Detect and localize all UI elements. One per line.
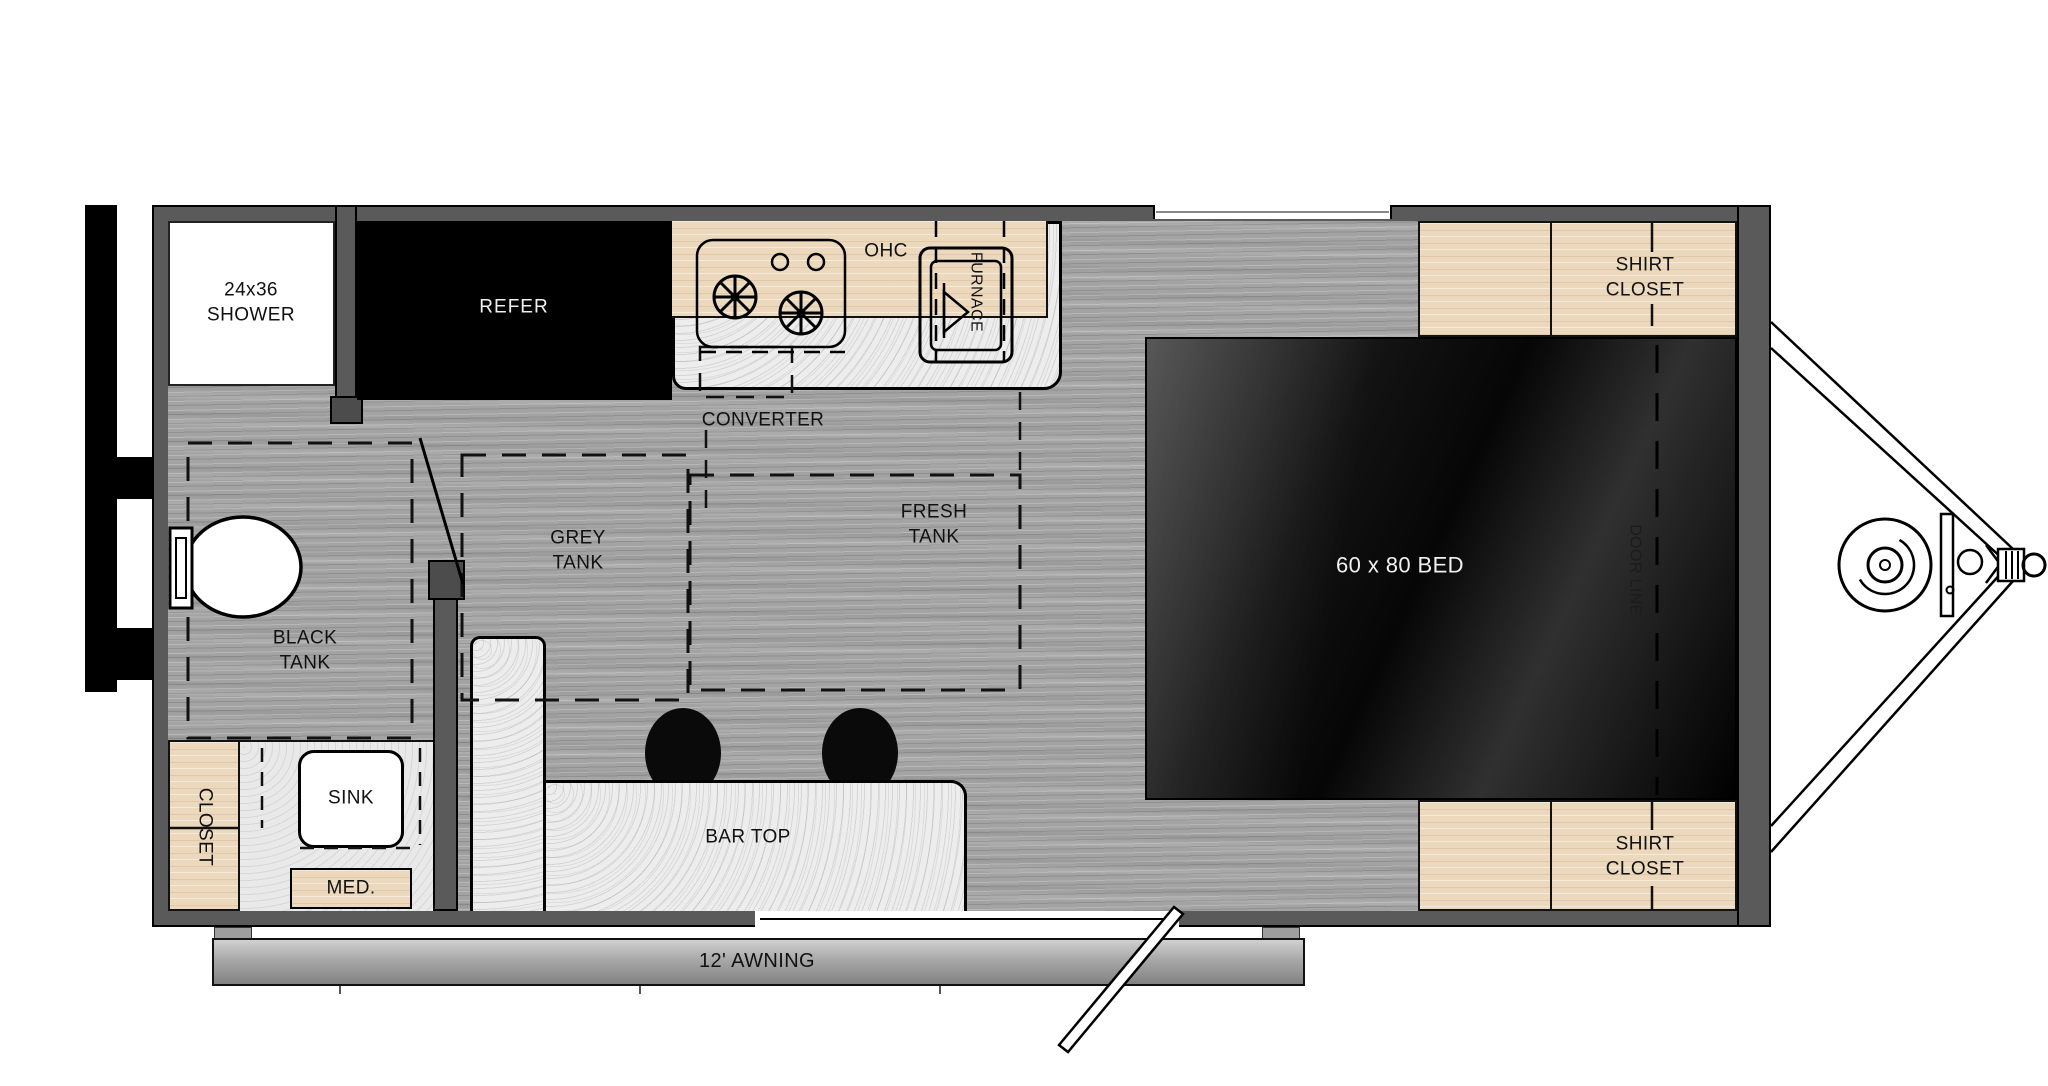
black-tank-label: BLACK TANK xyxy=(273,626,337,675)
refrigerator-label: REFER xyxy=(479,296,548,321)
medicine-cabinet-label: MED. xyxy=(326,877,375,902)
hitch-coupler-icon xyxy=(1947,549,2046,594)
rear-bumper-stub-upper xyxy=(85,457,155,499)
front-wall xyxy=(1737,205,1771,927)
bar-top-label: BAR TOP xyxy=(705,826,791,851)
door-line-label: DOOR LINE xyxy=(1624,524,1645,616)
rear-bumper-bar xyxy=(85,205,117,692)
bar-counter-leg xyxy=(470,636,546,911)
bathroom-partition-lower xyxy=(433,560,458,911)
converter-label: CONVERTER xyxy=(702,409,825,434)
entry-door-opening xyxy=(755,911,1179,927)
rear-bumper-stub-lower xyxy=(85,628,155,680)
overhead-cabinet xyxy=(672,221,1048,318)
overhead-cabinet-label: OHC xyxy=(864,240,907,265)
shirt-closet-bottom xyxy=(1418,800,1737,911)
shirt-closet-bottom-label: SHIRT CLOSET xyxy=(1606,832,1684,881)
partition-foot xyxy=(330,396,363,424)
furnace-label: FURNACE xyxy=(965,252,986,332)
bathroom-partition-upper xyxy=(335,205,357,410)
floorplan: 24x36 SHOWER REFER OHC FURNACE CONVERTER… xyxy=(0,0,2048,1086)
closet-divider xyxy=(1550,802,1552,909)
shower-label: 24x36 SHOWER xyxy=(207,278,295,327)
fresh-tank-label: FRESH TANK xyxy=(901,500,967,549)
bed-label: 60 x 80 BED xyxy=(1336,552,1464,581)
shirt-closet-top-label: SHIRT CLOSET xyxy=(1606,253,1684,302)
hitch-frame xyxy=(1771,322,2013,852)
sink-label: SINK xyxy=(328,787,374,812)
closet-label: CLOSET xyxy=(192,788,217,866)
closet-divider xyxy=(1550,223,1552,335)
awning-label: 12' AWNING xyxy=(699,948,815,974)
window xyxy=(1153,205,1392,219)
shirt-closet-top xyxy=(1418,221,1737,337)
grey-tank-label: GREY TANK xyxy=(550,526,605,575)
propane-tank-icon xyxy=(1839,519,1931,611)
partition-foot-lower xyxy=(428,560,465,600)
